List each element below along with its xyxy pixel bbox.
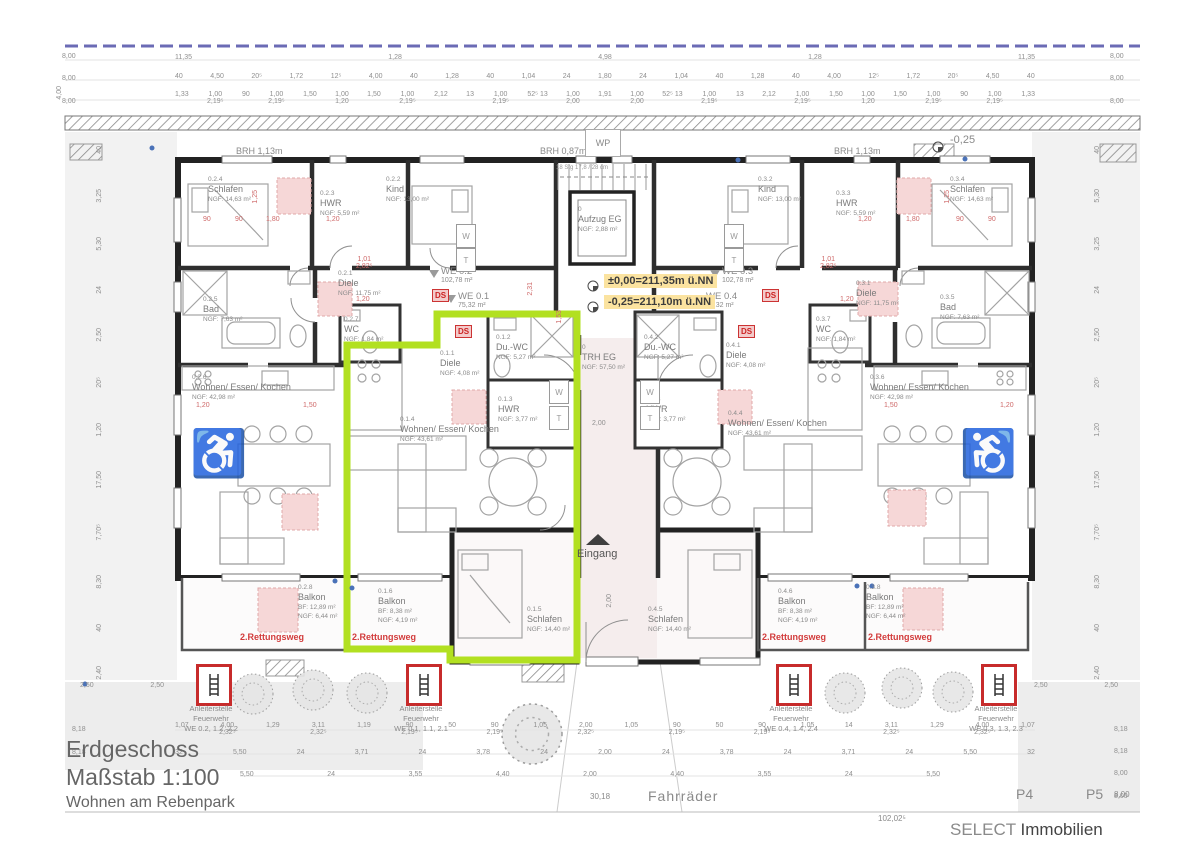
room-label-0-1-6: 0.1.6BalkonBF: 8,38 m²NGF: 4,19 m² <box>378 588 417 625</box>
washer-box: W <box>640 380 660 404</box>
dim-row-bottom-2: 325,50243,71243,78242,00243,78243,71245,… <box>175 749 1035 756</box>
dimension-value: 24 <box>784 749 792 756</box>
dimension-value: 2,50 <box>80 682 94 689</box>
dimension-value: 2,00 <box>598 749 612 756</box>
wheelchair-icon: ♿ <box>190 426 247 481</box>
room-label-0-4-1: 0.4.1DieleNGF: 4,08 m² <box>726 342 765 371</box>
dimension-value: 3,25 <box>96 189 103 203</box>
parking-dim: 8,00 <box>1114 790 1130 799</box>
dim-value: 1,20 <box>1000 402 1014 409</box>
dim-value: 90 <box>956 216 964 223</box>
dim-row-top-3: 1,331,002,19⁵901,002,19⁵1,501,001,201,50… <box>175 91 1035 106</box>
dimension-value: 3,25 <box>1094 237 1101 251</box>
room-label-0-3-3: 0.3.3HWRNGF: 5,59 m² <box>836 190 875 219</box>
dimension-value: 14 <box>845 722 853 729</box>
fire-access-label: AnleiterstelleFeuerwehrWE 0.3, 1.3, 2.3 <box>941 704 1051 734</box>
room-label-0-1-2: 0.1.2Du.-WCNGF: 5,27 m² <box>496 334 535 363</box>
dimension-value: 2,50 <box>96 328 103 342</box>
dimension-value: 5,50 <box>233 749 247 756</box>
fire-ladder-icon <box>981 664 1017 706</box>
dim-value: 2,31 <box>527 282 534 296</box>
stair-note: 18 Stg 17,8 / 28 cm <box>556 165 608 171</box>
dimension-value: 1,29 <box>266 722 280 729</box>
dimension-value: 8,18 <box>1114 748 1128 755</box>
dimension-value: 24 <box>96 286 103 294</box>
dimension-value: 8,00 <box>62 98 76 105</box>
dimension-value: 40 <box>1094 624 1101 632</box>
room-label-0-1-5: 0.1.5SchlafenNGF: 14,40 m² <box>527 606 570 635</box>
dimension-value: 1,04 <box>674 73 688 80</box>
room-label-0-4-4: 0.4.4Wohnen/ Essen/ KochenNGF: 43,61 m² <box>728 410 827 439</box>
dryer-box: T <box>549 406 569 430</box>
dimension-value: 902,19⁵ <box>486 722 503 737</box>
dimension-value: 17,50 <box>1094 471 1101 489</box>
dimension-value: 2,50 <box>1034 682 1048 689</box>
dimension-value: 5,50 <box>963 749 977 756</box>
dimension-value: 8,18 <box>72 726 86 733</box>
bicycle-area-label: Fahrräder <box>648 788 718 804</box>
dimension-value: 20⁵ <box>96 377 103 388</box>
dimension-value: 1,33 <box>1021 91 1035 98</box>
dimension-value: 1,33 <box>175 91 189 98</box>
room-label-0-2-5: 0.2.5BadNGF: 7,63 m² <box>203 296 242 325</box>
dimension-value: 4,00 <box>369 73 383 80</box>
dim-col-right-edge: 8,008,008,00 <box>1110 53 1124 105</box>
dimension-value: 40 <box>716 73 724 80</box>
dimension-value: 1,28 <box>388 54 402 61</box>
dimension-value: 40 <box>792 73 800 80</box>
dimension-value: 3,71 <box>355 749 369 756</box>
dimension-value: 1,002,00 <box>566 91 580 106</box>
dimension-value: 1,72 <box>907 73 921 80</box>
dimension-value: 24 <box>563 73 571 80</box>
dimension-value: 40 <box>175 73 183 80</box>
dimension-value: 2,00 <box>583 771 597 778</box>
dimension-value: 24 <box>540 749 548 756</box>
dimension-value: 3,112,32⁵ <box>310 722 327 737</box>
dimension-value: 3,78 <box>476 749 490 756</box>
apartment-tag-we01: WE 0.175,32 m² <box>458 291 489 311</box>
dimension-value: 24 <box>905 749 913 756</box>
dimension-value: 20⁵ <box>1094 377 1101 388</box>
dimension-value: 1,50 <box>367 91 381 98</box>
dimension-value: 90 <box>242 91 250 98</box>
elevation-note-minus: -0,25=211,10m ü.NN <box>604 295 715 309</box>
room-label-0-2-4: 0.2.4SchlafenNGF: 14,63 m² <box>208 176 251 205</box>
dim-value: 1,53 <box>556 310 563 324</box>
dim-value: 1,20 <box>196 402 210 409</box>
dimension-value: 1,002,19⁵ <box>794 91 811 106</box>
dimension-value: 8,00 <box>62 53 76 60</box>
brh-left: BRH 1,13m <box>236 146 283 156</box>
wp-box: WP <box>585 129 621 157</box>
fire-access-label: AnleiterstelleFeuerwehrWE 0.2, 1.2, 2.2 <box>156 704 266 734</box>
rescue-route-label: 2.Rettungsweg <box>762 632 826 642</box>
parking-p5-label: P5 <box>1086 786 1103 802</box>
dimension-value: 3,55 <box>409 771 423 778</box>
dimension-value: 3,78 <box>720 749 734 756</box>
dim-value: 2,00 <box>606 594 613 608</box>
dimension-value: 40 <box>96 146 103 154</box>
dim-value: 1,80 <box>906 216 920 223</box>
rescue-route-label: 2.Rettungsweg <box>352 632 416 642</box>
fire-ladder-icon <box>406 664 442 706</box>
rescue-route-label: 2.Rettungsweg <box>868 632 932 642</box>
dimension-value: 1,05 <box>533 722 547 729</box>
total-width-dim: 102,02⁵ <box>878 814 906 823</box>
washer-box: W <box>724 224 744 248</box>
title-floor: Erdgeschoss <box>66 736 199 763</box>
dimension-value: 24 <box>845 771 853 778</box>
dimension-value: 1,001,20 <box>861 91 875 106</box>
fire-ladder-icon <box>196 664 232 706</box>
dimension-value: 2,50 <box>1094 328 1101 342</box>
room-label-0-1-1: 0.1.1DieleNGF: 4,08 m² <box>440 350 479 379</box>
title-project: Wohnen am Rebenpark <box>66 794 235 812</box>
dim-value: 1,012,82⁵ <box>356 256 373 271</box>
dimension-value: 24 <box>297 749 305 756</box>
dim-row-top-2: 404,5020⁵1,7212⁵4,00401,28401,04241,8024… <box>175 73 1035 80</box>
title-scale: Maßstab 1:100 <box>66 764 219 791</box>
dimension-value: 1,002,19⁵ <box>268 91 285 106</box>
dimension-value: 20⁵ <box>251 73 262 80</box>
parking-p4-label: P4 <box>1016 786 1033 802</box>
dimension-value: 2,002,32⁵ <box>578 722 595 737</box>
dimension-value: 7,70⁵ <box>96 524 103 541</box>
fire-access-label: AnleiterstelleFeuerwehrWE 0.4, 1.4, 2.4 <box>736 704 846 734</box>
dimension-value: 5,30 <box>96 237 103 251</box>
dimension-value: 24 <box>639 73 647 80</box>
dimension-value: 902,19⁵ <box>669 722 686 737</box>
dim-col-left: 403,255,30242,5020⁵1,2017,507,70⁵8,30402… <box>96 146 103 680</box>
dimension-value: 17,50 <box>96 471 103 489</box>
dryer-box: T <box>724 248 744 272</box>
dim-row-bottom-3: 5,50243,554,402,004,403,55245,50 <box>240 771 940 778</box>
room-label-0-3-4: 0.3.4SchlafenNGF: 14,63 m² <box>950 176 993 205</box>
dimension-value: 3,71 <box>842 749 856 756</box>
dimension-value: 1,05 <box>624 722 638 729</box>
room-label-0-2-2: 0.2.2KindNGF: 13,00 m² <box>386 176 429 205</box>
dimension-value: 3,55 <box>758 771 772 778</box>
dimension-value: 5,30 <box>1094 189 1101 203</box>
dimension-value: 1,28 <box>808 54 822 61</box>
room-label-0-2-3: 0.2.3HWRNGF: 5,59 m² <box>320 190 359 219</box>
dimension-value: 50 <box>716 722 724 729</box>
room-label-0-1-3: 0.1.3HWRNGF: 3,77 m² <box>498 396 537 425</box>
dim-col-left-edge: 8,008,008,00 <box>62 53 76 105</box>
dimension-value: 1,002,19⁵ <box>986 91 1003 106</box>
dim-row-bottom-1: 1,074,002,32⁵1,293,112,32⁵1,19902,19⁵509… <box>175 722 1035 737</box>
dimension-value: 7,70⁵ <box>1094 524 1101 541</box>
dimension-value: 13 <box>736 91 744 98</box>
dimension-value: 1,002,19⁵ <box>701 91 718 106</box>
dimension-value: 40 <box>96 624 103 632</box>
dimension-value: 2,12 <box>762 91 776 98</box>
dimension-value: 8,00 <box>1114 770 1128 777</box>
wheelchair-icon: ♿ <box>960 426 1017 481</box>
dimension-value: 1,002,19⁵ <box>399 91 416 106</box>
dimension-value: 2,12 <box>434 91 448 98</box>
dim-value: 90 <box>203 216 211 223</box>
dim-value: 4,00 <box>56 86 63 100</box>
dimension-value: 2,40 <box>1094 666 1101 680</box>
dimension-value: 1,72 <box>290 73 304 80</box>
dimension-value: 5,50 <box>240 771 254 778</box>
room-label-0-3-2: 0.3.2KindNGF: 13,00 m² <box>758 176 801 205</box>
entrance-label: Eingang <box>577 548 617 560</box>
dimension-value: 4,40 <box>670 771 684 778</box>
room-label-0-2-6: 0.2.6Wohnen/ Essen/ KochenNGF: 42,98 m² <box>192 374 291 403</box>
room-label-0-1-4: 0.1.4Wohnen/ Essen/ KochenNGF: 43,61 m² <box>400 416 499 445</box>
room-label-0-2-8: 0.2.8BalkonBF: 12,89 m²NGF: 6,44 m² <box>298 584 337 621</box>
brand-logo: SELECT Immobilien <box>950 820 1103 840</box>
ds-badge: DS <box>762 289 779 302</box>
room-label-aufzug: 0Aufzug EGNGF: 2,88 m² <box>578 206 638 235</box>
washer-box: W <box>456 224 476 248</box>
washer-box: W <box>549 380 569 404</box>
dimension-value: 40 <box>486 73 494 80</box>
dimension-value: 1,91 <box>598 91 612 98</box>
dim-value: 90 <box>235 216 243 223</box>
dimension-value: 40 <box>1027 73 1035 80</box>
ds-badge: DS <box>455 325 472 338</box>
dimension-value: 4,50 <box>210 73 224 80</box>
dim-value: 1,50 <box>884 402 898 409</box>
dim-col-right: 405,303,25242,5020⁵1,2017,507,70⁵8,30402… <box>1094 146 1101 680</box>
fire-ladder-icon <box>776 664 812 706</box>
dimension-value: 24 <box>418 749 426 756</box>
dim-row-corner-right: 2,502,50 <box>1034 682 1118 689</box>
dimension-value: 8,00 <box>1110 53 1124 60</box>
dimension-value: 1,50 <box>303 91 317 98</box>
room-label-0-2-7: 0.2.7WCNGF: 1,84 m² <box>344 316 383 345</box>
dimension-value: 4,50 <box>986 73 1000 80</box>
dim-value: 1,012,82⁵ <box>820 256 837 271</box>
walkway-dim: 30,18 <box>590 792 610 801</box>
room-label-0-3-6: 0.3.6Wohnen/ Essen/ KochenNGF: 42,98 m² <box>870 374 969 403</box>
brh-center: BRH 0,87m <box>540 146 587 156</box>
dimension-value: 24 <box>1094 286 1101 294</box>
dimension-value: 24 <box>662 749 670 756</box>
dim-value: 1,25 <box>252 190 259 204</box>
room-label-0-3-8: 0.3.8BalkonBF: 12,89 m²NGF: 6,44 m² <box>866 584 905 621</box>
dim-row-top-1: 11,351,284,981,2811,35 <box>175 54 1035 61</box>
dim-row-corner-left: 2,502,50 <box>80 682 164 689</box>
dimension-value: 4,00 <box>827 73 841 80</box>
dimension-value: 4,98 <box>598 54 612 61</box>
dimension-value: 1,28 <box>751 73 765 80</box>
entrance-arrow-icon <box>586 534 610 545</box>
room-label-0-4-2: 0.4.2Du.-WCNGF: 5,27 m² <box>644 334 683 363</box>
dimension-value: 1,002,19⁵ <box>925 91 942 106</box>
dim-value: 90 <box>988 216 996 223</box>
dimension-value: 1,002,19⁵ <box>207 91 224 106</box>
room-label-0-4-5: 0.4.5SchlafenNGF: 14,40 m² <box>648 606 691 635</box>
dimension-value: 8,00 <box>62 75 76 82</box>
dimension-value: 1,001,20 <box>335 91 349 106</box>
floorplan-page: { "title_block": { "line1": "Erdgeschoss… <box>0 0 1200 848</box>
dimension-value: 8,00 <box>1110 98 1124 105</box>
dimension-value: 20⁵ <box>948 73 959 80</box>
dimension-value: 1,002,00 <box>630 91 644 106</box>
dimension-value: 8,00 <box>1110 75 1124 82</box>
dimension-value: 12⁵ <box>868 73 879 80</box>
room-label-trh: 0TRH EGNGF: 57,50 m² <box>582 344 625 373</box>
dimension-value: 32 <box>1027 749 1035 756</box>
dimension-value: 52⁵ 13 <box>662 91 682 98</box>
dimension-value: 8,18 <box>1114 726 1128 733</box>
dimension-value: 13 <box>466 91 474 98</box>
dryer-box: T <box>640 406 660 430</box>
dim-value: 1,20 <box>840 296 854 303</box>
room-label-0-4-6: 0.4.6BalkonBF: 8,38 m²NGF: 4,19 m² <box>778 588 817 625</box>
dimension-value: 40 <box>1094 146 1101 154</box>
brh-right: BRH 1,13m <box>834 146 881 156</box>
dimension-value: 3,112,32⁵ <box>883 722 900 737</box>
dimension-value: 2,50 <box>150 682 164 689</box>
dimension-value: 1,50 <box>893 91 907 98</box>
dimension-value: 11,35 <box>175 54 192 61</box>
dimension-value: 1,28 <box>445 73 459 80</box>
elevation-minus-025: -0,25 <box>950 134 975 146</box>
dim-value: 2,00 <box>592 420 606 427</box>
dimension-value: 2,40 <box>96 666 103 680</box>
dimension-value: 1,20 <box>1094 423 1101 437</box>
dim-col-right-block: 8,188,188,008,00 <box>1114 726 1128 800</box>
room-label-0-2-1: 0.2.1DieleNGF: 11,75 m² <box>338 270 381 299</box>
dimension-value: 90 <box>960 91 968 98</box>
dimension-value: 1,20 <box>96 423 103 437</box>
dimension-value: 1,04 <box>522 73 536 80</box>
room-label-0-3-7: 0.3.7WCNGF: 1,84 m² <box>816 316 855 345</box>
elevation-note-zero: ±0,00=211,35m ü.NN <box>604 274 717 288</box>
dimension-value: 11,35 <box>1018 54 1035 61</box>
dimension-value: 4,40 <box>496 771 510 778</box>
fire-access-label: AnleiterstelleFeuerwehrWE 0.1, 1.1, 2.1 <box>366 704 476 734</box>
room-label-0-3-5: 0.3.5BadNGF: 7,63 m² <box>940 294 979 323</box>
dim-value: 1,80 <box>266 216 280 223</box>
dimension-value: 5,50 <box>926 771 940 778</box>
room-label-0-3-1: 0.3.1DieleNGF: 11,75 m² <box>856 280 899 309</box>
ds-badge: DS <box>738 325 755 338</box>
dimension-value: 8,30 <box>96 575 103 589</box>
dimension-value: 24 <box>327 771 335 778</box>
dimension-value: 1,80 <box>598 73 612 80</box>
dryer-box: T <box>456 248 476 272</box>
dimension-value: 2,50 <box>1104 682 1118 689</box>
dimension-value: 12⁵ <box>331 73 342 80</box>
ds-badge: DS <box>432 289 449 302</box>
dim-value: 1,50 <box>303 402 317 409</box>
dimension-value: 1,002,19⁵ <box>492 91 509 106</box>
dimension-value: 1,50 <box>829 91 843 98</box>
rescue-route-label: 2.Rettungsweg <box>240 632 304 642</box>
dimension-value: 8,30 <box>1094 575 1101 589</box>
dimension-value: 40 <box>410 73 418 80</box>
dimension-value: 52⁵ 13 <box>527 91 547 98</box>
